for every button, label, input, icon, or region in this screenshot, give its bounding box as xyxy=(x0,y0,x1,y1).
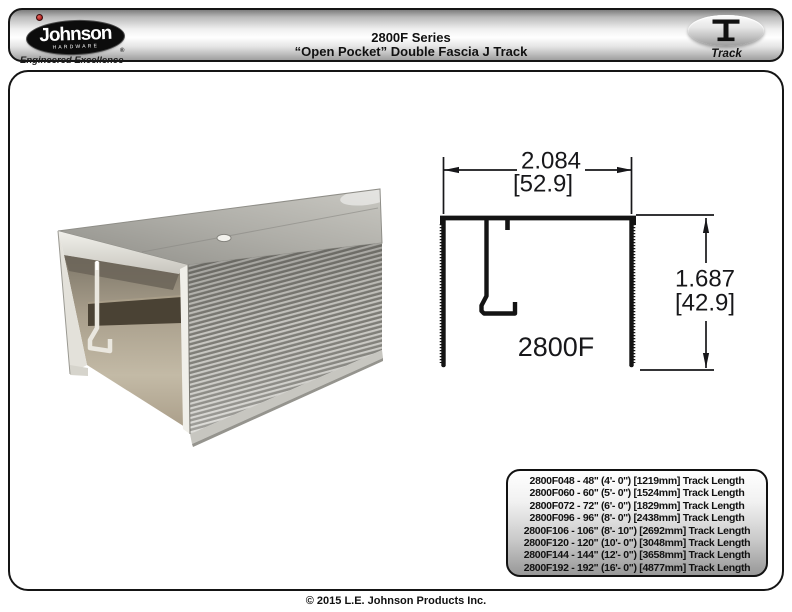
width-dimension-mm: [52.9] xyxy=(513,171,573,198)
logo-red-dot-icon xyxy=(36,14,43,21)
registered-mark: ® xyxy=(120,48,124,54)
logo-tagline: Engineered Excellence xyxy=(20,55,138,66)
height-dimension-mm: [42.9] xyxy=(675,290,735,317)
header-bar: Johnson HARDWARE ® Engineered Excellence… xyxy=(8,8,784,62)
part-row: 2800F096 - 96'' (8'- 0'') [2438mm] Track… xyxy=(508,512,766,524)
profile-j-hook xyxy=(482,220,516,314)
dimension-drawing: 2.084 [52.9] 1.687 [42.9] 2800F xyxy=(422,132,782,402)
aluminum-track-photo xyxy=(22,162,432,472)
part-row: 2800F192 - 192" (16'- 0") [4877mm] Track… xyxy=(508,562,766,574)
johnson-hardware-logo: Johnson HARDWARE ® Engineered Excellence xyxy=(20,11,138,63)
part-number-panel: 2800F048 - 48'' (4'- 0'') [1219mm] Track… xyxy=(506,469,768,577)
logo-oval: Johnson HARDWARE xyxy=(26,19,124,55)
content-box: 2.084 [52.9] 1.687 [42.9] 2800F 2800F048… xyxy=(8,70,784,591)
logo-hardware-text: HARDWARE xyxy=(52,44,99,51)
track-badge-oval xyxy=(688,15,764,46)
cross-section-diagram: 2.084 [52.9] 1.687 [42.9] 2800F xyxy=(422,132,782,402)
track-badge-label: Track xyxy=(688,48,765,60)
track-ribbed-face xyxy=(188,243,383,447)
product-subtitle: “Open Pocket” Double Fascia J Track xyxy=(150,45,672,59)
part-row: 2800F106 - 106" (8'- 10") [2692mm] Track… xyxy=(508,525,766,537)
part-row: 2800F144 - 144" (12'- 0") [3658mm] Track… xyxy=(508,549,766,561)
model-label: 2800F xyxy=(518,332,595,362)
part-row: 2800F048 - 48'' (4'- 0'') [1219mm] Track… xyxy=(508,475,766,487)
series-title: 2800F Series xyxy=(150,30,672,45)
part-row: 2800F072 - 72'' (6'- 0'') [1829mm] Track… xyxy=(508,500,766,512)
track-badge: Track xyxy=(688,15,765,63)
header-titles: 2800F Series “Open Pocket” Double Fascia… xyxy=(150,30,672,59)
part-row: 2800F120 - 120" (10'- 0") [3048mm] Track… xyxy=(508,537,766,549)
height-dimension-inches: 1.687 xyxy=(675,266,735,293)
product-sheet-page: Johnson HARDWARE ® Engineered Excellence… xyxy=(0,0,792,612)
logo-brand-text: Johnson xyxy=(39,24,112,45)
copyright-footer: © 2015 L.E. Johnson Products Inc. xyxy=(0,595,792,607)
track-channel-interior xyxy=(64,255,185,427)
product-photo xyxy=(22,162,432,472)
part-row: 2800F060 - 60'' (5'- 0'') [1524mm] Track… xyxy=(508,487,766,499)
screw-hole xyxy=(217,234,231,241)
track-cross-section-icon xyxy=(712,19,740,42)
